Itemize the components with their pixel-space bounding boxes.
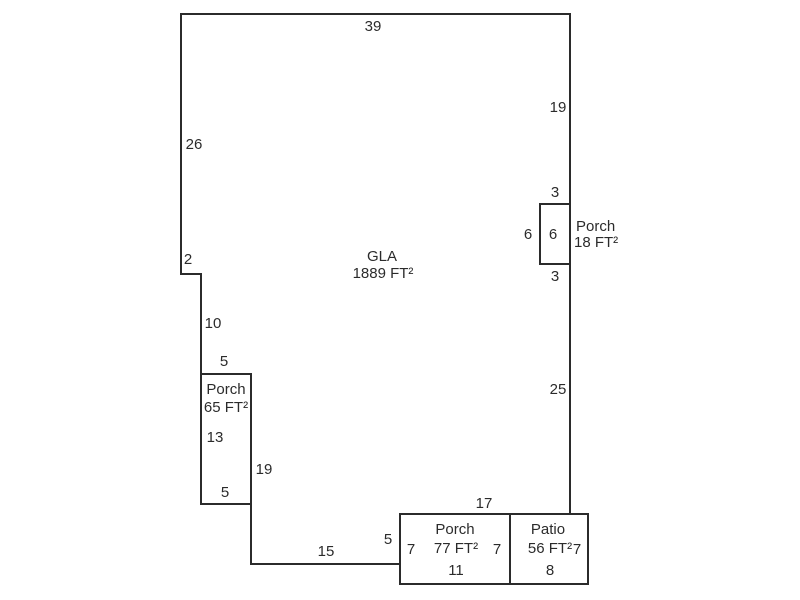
dim-left-lower: 19 [256, 461, 273, 478]
dim-left-step: 2 [184, 251, 192, 268]
dim-porch-left-bottom: 5 [221, 484, 229, 501]
porch-left-area-value: 65 FT² [204, 399, 248, 416]
porch-right-label: Porch [576, 218, 615, 235]
floorplan-canvas: GLA 1889 FT² Porch 18 FT² Porch 65 FT² P… [0, 0, 800, 600]
porch-bottom-label: Porch [435, 521, 474, 538]
dim-porch-bottom-left-height: 7 [407, 541, 415, 558]
dim-top-width: 39 [365, 18, 382, 35]
dim-right-lower: 25 [550, 381, 567, 398]
dim-bottom-mid: 15 [318, 543, 335, 560]
dim-right-upper: 19 [550, 99, 567, 116]
gla-outline [181, 14, 570, 564]
dim-porch-right-width-inner: 6 [549, 226, 557, 243]
dim-left-mid: 10 [205, 315, 222, 332]
patio-label: Patio [531, 521, 565, 538]
gla-label: GLA [367, 248, 397, 265]
dim-porch-right-bottom: 3 [551, 268, 559, 285]
dim-patio-width: 8 [546, 562, 554, 579]
dim-left-upper: 26 [186, 136, 203, 153]
floorplan-sketch: GLA 1889 FT² Porch 18 FT² Porch 65 FT² P… [0, 0, 800, 600]
dim-porch-bottom-right-height: 7 [493, 541, 501, 558]
porch-left-label: Porch [206, 381, 245, 398]
dim-porch-right-width-outer: 6 [524, 226, 532, 243]
porch-right-area-value: 18 FT² [574, 234, 618, 251]
dim-bottom-right: 17 [476, 495, 493, 512]
dim-porch-left-height: 13 [207, 429, 224, 446]
dim-porch-left-top: 5 [220, 353, 228, 370]
patio-area-value: 56 FT² [528, 540, 572, 557]
dim-porch-right-top: 3 [551, 184, 559, 201]
gla-area-value: 1889 FT² [353, 265, 414, 282]
dim-bottom-step: 5 [384, 531, 392, 548]
dim-patio-height: 7 [573, 541, 581, 558]
porch-bottom-area-value: 77 FT² [434, 540, 478, 557]
dim-porch-bottom-width: 11 [448, 562, 464, 579]
